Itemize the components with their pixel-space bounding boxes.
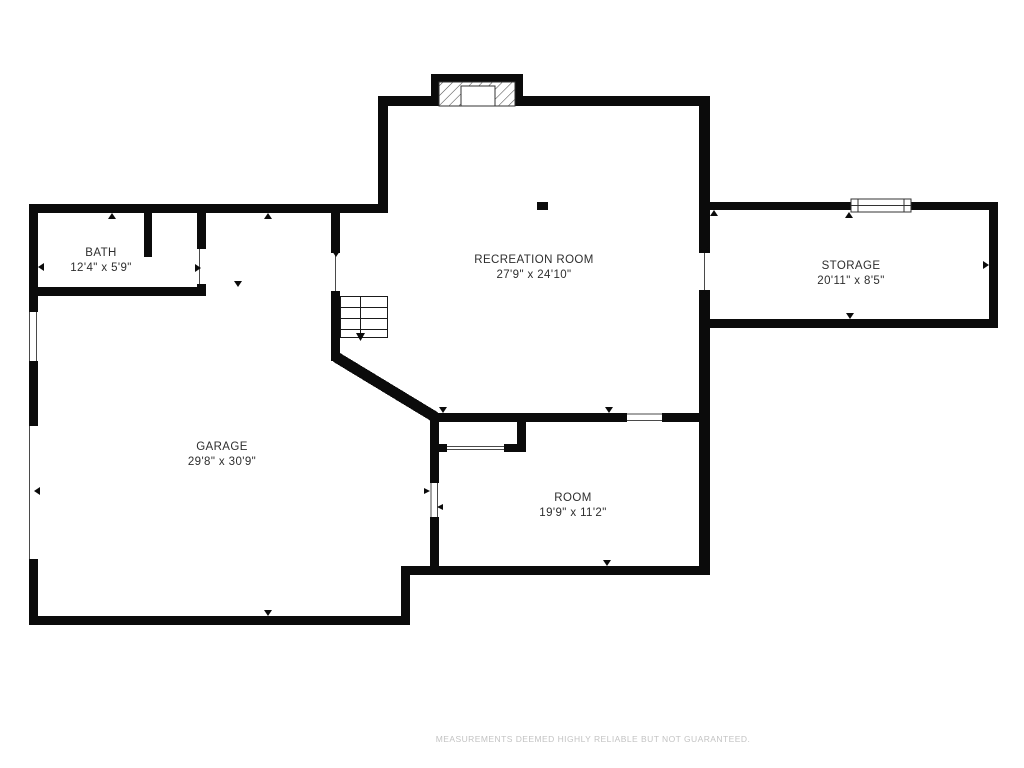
floor-plan-page: BATH 12'4" x 5'9" RECREATION ROOM 27'9" … <box>0 0 1024 768</box>
wall-segment <box>197 284 206 296</box>
wall-segment <box>910 202 998 210</box>
room-dimensions: 19'9" x 11'2" <box>539 506 606 521</box>
wall-segment <box>430 413 439 483</box>
wall-segment <box>378 96 710 106</box>
marker-icon <box>424 488 430 494</box>
wall-segment <box>662 413 710 422</box>
room-label-garage: GARAGE 29'8" x 30'9" <box>188 440 256 469</box>
wall-segment <box>29 287 206 296</box>
floor-plan-drawing <box>0 0 1024 768</box>
marker-icon <box>439 407 447 413</box>
room-dimensions: 12'4" x 5'9" <box>70 261 131 276</box>
wall-segment <box>29 559 38 625</box>
room-label-recreation-room: RECREATION ROOM 27'9" x 24'10" <box>474 253 594 282</box>
room-label-bath: BATH 12'4" x 5'9" <box>70 246 131 275</box>
marker-icon <box>710 210 718 216</box>
room-dimensions: 20'11" x 8'5" <box>817 274 884 289</box>
room-label-storage: STORAGE 20'11" x 8'5" <box>817 259 884 288</box>
wall-segment <box>710 319 998 328</box>
walls <box>29 96 998 625</box>
marker-icon <box>983 261 989 269</box>
wall-segment <box>989 202 998 328</box>
room-dimensions: 27'9" x 24'10" <box>474 268 594 283</box>
disclaimer-text: MEASUREMENTS DEEMED HIGHLY RELIABLE BUT … <box>436 734 751 744</box>
marker-icon <box>264 610 272 616</box>
marker-icon <box>34 487 40 495</box>
closet-wall <box>504 444 526 452</box>
wall-segment <box>378 96 388 213</box>
marker-icon <box>108 213 116 219</box>
wall-segment <box>29 361 38 426</box>
wall-segment <box>197 204 206 249</box>
room-name: ROOM <box>539 491 606 506</box>
wall-segment <box>401 566 709 575</box>
firebox <box>461 86 495 106</box>
fireplace <box>431 74 523 106</box>
wall-segment <box>144 204 152 257</box>
wall-segment <box>430 413 627 422</box>
marker-icon <box>234 281 242 287</box>
marker-icon <box>264 213 272 219</box>
wall-segment <box>699 290 710 575</box>
room-name: GARAGE <box>188 440 256 455</box>
room-label-room: ROOM 19'9" x 11'2" <box>539 491 606 520</box>
room-name: BATH <box>70 246 131 261</box>
support-post <box>537 202 548 210</box>
marker-icon <box>603 560 611 566</box>
staircase-down <box>341 297 388 342</box>
wall-segment <box>401 567 410 622</box>
window <box>851 199 911 212</box>
marker-icon <box>846 313 854 319</box>
wall-segment <box>331 291 340 361</box>
marker-icon <box>332 251 340 257</box>
marker-icon <box>38 263 44 271</box>
wall-segment <box>710 202 852 210</box>
marker-icon <box>195 264 201 272</box>
diagonal-wall <box>336 357 435 417</box>
closet-wall <box>439 444 447 452</box>
wall-segment <box>29 616 410 625</box>
marker-icon <box>845 212 853 218</box>
room-name: RECREATION ROOM <box>474 253 594 268</box>
room-name: STORAGE <box>817 259 884 274</box>
wall-segment <box>430 517 439 574</box>
marker-icon <box>605 407 613 413</box>
room-dimensions: 29'8" x 30'9" <box>188 455 256 470</box>
wall-segment <box>331 204 340 253</box>
wall-segment <box>699 96 710 253</box>
